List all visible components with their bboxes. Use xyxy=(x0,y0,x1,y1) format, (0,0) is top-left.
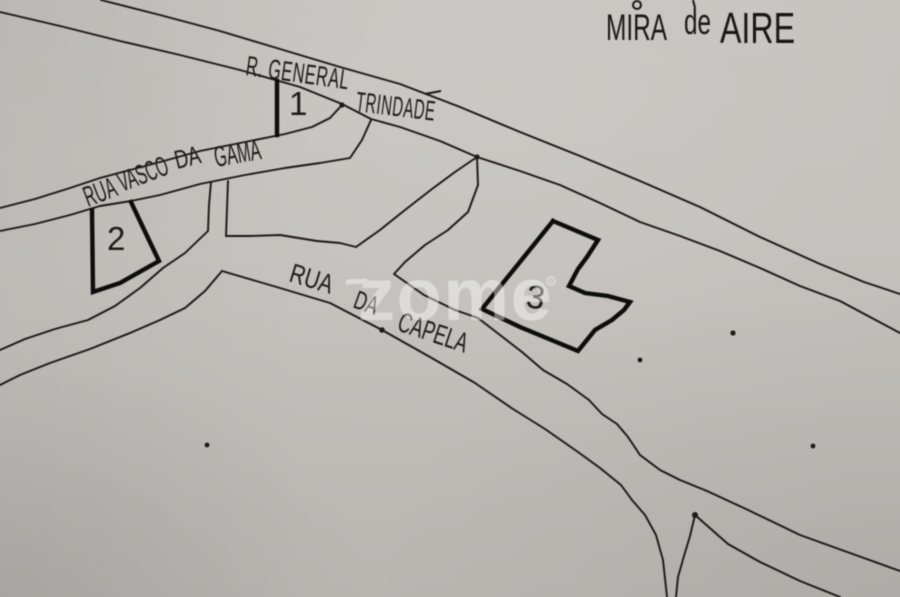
svg-text:AIRE: AIRE xyxy=(720,4,795,53)
svg-text:1: 1 xyxy=(289,85,307,122)
svg-text:R: R xyxy=(549,280,554,286)
svg-text:MIRA: MIRA xyxy=(606,7,667,48)
svg-text:2: 2 xyxy=(107,220,125,257)
svg-text:zome: zome xyxy=(358,253,553,336)
svg-text:de: de xyxy=(684,1,711,42)
